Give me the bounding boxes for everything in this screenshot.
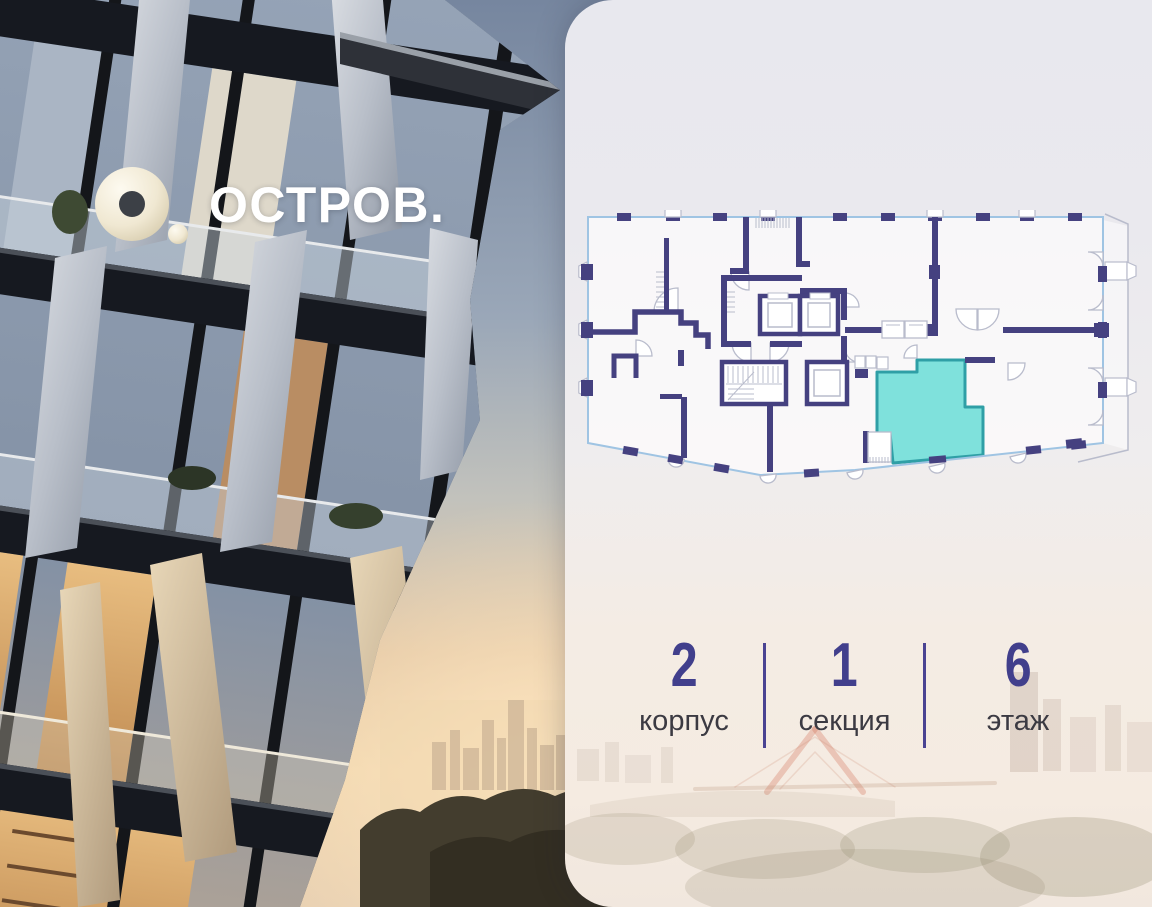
stairwell [722,362,786,404]
balcony-plant [52,190,88,234]
unit-location-stats: 2 корпус 1 секция 6 этаж [605,633,1110,748]
stat-block: 2 корпус [605,633,763,737]
brand-logo: ОСТРОВ. [95,165,445,245]
stat-label: корпус [639,705,729,737]
stat-value: 1 [831,633,858,699]
floor-plan[interactable] [578,210,1145,485]
ac-boxes [855,356,888,369]
window-sills [882,321,927,338]
stat-value: 6 [1005,633,1032,699]
stat-value: 2 [671,633,698,699]
donut-o-icon [95,164,195,246]
faded-trees [565,813,1152,907]
stat-label: этаж [987,705,1050,737]
balcony-plant [329,503,383,529]
stat-block: 6 этаж [926,633,1110,737]
stat-label: секция [799,705,891,737]
unit-balcony [868,432,891,463]
faded-stadium [590,791,895,817]
logo-text: ОСТРОВ. [209,176,445,234]
side-panel: 2 корпус 1 секция 6 этаж [565,0,1152,907]
stat-block: 1 секция [766,633,923,737]
balcony-plant [168,466,216,490]
